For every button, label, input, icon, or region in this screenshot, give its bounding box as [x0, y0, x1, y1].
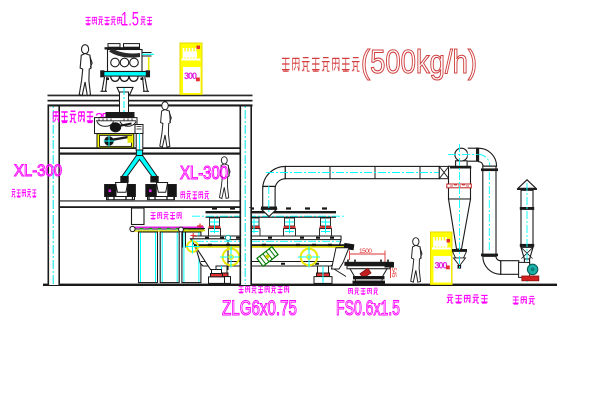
svg-text:XL-300: XL-300 — [180, 163, 228, 183]
svg-text:300: 300 — [184, 71, 197, 81]
svg-text:300: 300 — [435, 261, 448, 271]
svg-text:545: 545 — [390, 268, 396, 279]
svg-text:XL-300: XL-300 — [14, 161, 62, 180]
svg-text:(500kg/h): (500kg/h) — [361, 43, 477, 80]
svg-text:1500: 1500 — [359, 248, 372, 255]
svg-text:1.5: 1.5 — [121, 10, 139, 31]
svg-text:ZLG6x0.75: ZLG6x0.75 — [222, 297, 297, 320]
svg-text:FS0.6x1.5: FS0.6x1.5 — [336, 297, 400, 320]
